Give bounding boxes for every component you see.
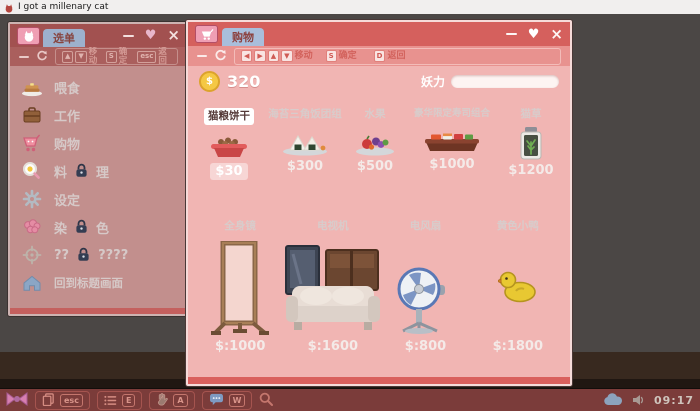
a-keycap: A — [173, 394, 187, 407]
menu-window-toolbar: ▲▼移动 S确定 esc返回 — [10, 47, 187, 66]
egg-magnifier-icon — [19, 159, 45, 183]
heart-icon[interactable]: ♥ — [528, 28, 540, 41]
minimize-icon[interactable] — [506, 33, 517, 35]
search-icon[interactable] — [259, 391, 273, 410]
item-price: $30 — [210, 163, 247, 181]
menu-item-shop[interactable]: 购物 — [10, 129, 187, 157]
taskbar-menu-button[interactable]: esc — [35, 391, 90, 410]
menu-item-label-right: 色 — [96, 218, 109, 237]
item-price: $:1600 — [308, 339, 358, 355]
menu-item-label-left: 料 — [54, 162, 67, 181]
menu-item-dye-locked[interactable]: 染色 — [10, 213, 187, 241]
key-confirm: S — [326, 50, 337, 62]
shop-window-titlebar[interactable]: 购物 ♥ × — [188, 22, 570, 46]
lock-icon — [75, 219, 88, 238]
key-down: ▼ — [75, 51, 86, 63]
shop-item-fan[interactable]: 电风扇 $:800 — [379, 220, 471, 354]
close-icon[interactable]: × — [550, 27, 563, 42]
brain-icon — [19, 215, 45, 239]
food-items-row: 猫粮饼干 $30 海苔三角饭团组 $300 水果 $500 — [188, 108, 570, 180]
taskbar: esc E A W — [0, 388, 700, 411]
key-right: ▶ — [254, 50, 265, 62]
menu-item-label-left: 染 — [54, 218, 67, 237]
shop-stats-row: $ 320 妖力 — [188, 66, 570, 96]
electric-fan-image — [395, 237, 455, 335]
shop-window-tab[interactable]: 购物 — [222, 28, 264, 46]
menu-item-cooking-locked[interactable]: 料理 — [10, 157, 187, 185]
item-name: 猫草 — [521, 108, 542, 121]
collapse-icon[interactable] — [197, 55, 207, 57]
shop-item-mirror[interactable]: 全身镜 $:1000 — [194, 220, 286, 354]
shop-window-toolbar: ◀▶▲▼移动 S确定 D返回 — [188, 46, 570, 66]
confirm-hint-label: 确定 — [339, 52, 357, 61]
refresh-icon[interactable] — [36, 47, 48, 66]
sushi-platter-image — [423, 122, 481, 154]
menu-item-label: 喂食 — [54, 78, 80, 97]
app-cat-icon — [4, 0, 14, 17]
minimize-icon[interactable] — [123, 35, 134, 37]
lock-icon — [77, 247, 90, 266]
shop-item-cat-grass[interactable]: 猫草 $1200 — [498, 108, 564, 178]
shop-key-hints: ◀▶▲▼移动 S确定 D返回 — [234, 48, 561, 65]
menu-item-mystery-locked[interactable]: ?????? — [10, 241, 187, 269]
key-back: D — [374, 50, 386, 62]
menu-item-label: 回到标题画面 — [54, 275, 123, 291]
bow-icon[interactable] — [6, 391, 28, 411]
shop-item-tv[interactable]: 电视机 $:1600 — [286, 220, 379, 354]
back-hint-label: 返回 — [387, 52, 405, 61]
shop-window: 购物 ♥ × ◀▶▲▼移动 S确定 D返回 $ 320 妖力 — [186, 20, 572, 386]
briefcase-icon — [19, 103, 45, 127]
onigiri-plate-image — [281, 124, 329, 156]
menu-key-hints: ▲▼移动 S确定 esc返回 — [55, 48, 178, 65]
back-hint-label: 返回 — [158, 48, 171, 65]
furniture-items-row: 全身镜 $:1000 电视机 $:1600 电风扇 $:800 — [188, 220, 570, 354]
key-left: ◀ — [241, 50, 252, 62]
gear-icon — [19, 187, 45, 211]
confirm-hint-label: 确定 — [119, 48, 133, 65]
pancake-icon — [19, 75, 45, 99]
menu-window-tab[interactable]: 选单 — [43, 29, 85, 47]
item-price: $500 — [357, 159, 393, 175]
shop-item-sushi[interactable]: 豪华限定寿司组合 $1000 — [406, 108, 498, 173]
power-label: 妖力 — [421, 73, 445, 90]
hand-icon — [156, 391, 168, 410]
item-name: 猫粮饼干 — [204, 108, 254, 125]
item-name: 豪华限定寿司组合 — [414, 108, 490, 119]
move-hint-label: 移动 — [295, 52, 313, 61]
cart-icon — [19, 131, 45, 155]
chat-bubble-icon — [209, 391, 224, 410]
menu-item-label: 购物 — [54, 134, 80, 153]
cloud-icon[interactable] — [603, 391, 623, 410]
item-name: 全身镜 — [224, 220, 256, 233]
money-amount: 320 — [227, 72, 260, 91]
coin-icon: $ — [199, 71, 220, 92]
cat-grass-jar-image — [518, 124, 544, 160]
cat-face-icon — [17, 27, 40, 45]
menu-item-settings[interactable]: 设定 — [10, 185, 187, 213]
full-body-mirror-image — [209, 237, 271, 335]
shopping-cart-icon — [195, 25, 218, 43]
key-up: ▲ — [268, 50, 279, 62]
home-icon — [19, 271, 45, 295]
shop-item-onigiri[interactable]: 海苔三角饭团组 $300 — [266, 108, 344, 174]
item-name: 海苔三角饭团组 — [268, 108, 342, 121]
item-price: $:1000 — [215, 339, 265, 355]
move-hint-label: 移动 — [89, 48, 101, 65]
cat-food-bowl-image — [207, 128, 251, 160]
lock-icon — [75, 163, 88, 182]
collapse-icon[interactable] — [19, 56, 29, 58]
document-icon — [42, 391, 55, 410]
item-name: 电风扇 — [410, 220, 442, 233]
menu-item-feed[interactable]: 喂食 — [10, 73, 187, 101]
taskbar-chat-button[interactable]: W — [202, 391, 253, 410]
shop-item-fruit[interactable]: 水果 $500 — [344, 108, 406, 174]
key-back: esc — [137, 51, 156, 63]
menu-window: 选单 ♥ × ▲▼移动 S确定 esc返回 喂食 — [8, 22, 189, 316]
speaker-icon[interactable] — [632, 391, 645, 410]
item-price: $1000 — [429, 157, 474, 173]
item-name: 黄色小鸭 — [497, 220, 539, 233]
taskbar-list-button[interactable]: E — [97, 391, 142, 410]
item-price: $300 — [287, 159, 323, 175]
os-window-title: I got a millenary cat — [18, 0, 108, 14]
tv-set-image — [284, 237, 382, 335]
yellow-duck-image — [498, 237, 538, 335]
close-icon[interactable]: × — [167, 28, 180, 43]
fruit-plate-image — [354, 124, 396, 156]
menu-item-return-title[interactable]: 回到标题画面 — [10, 269, 187, 297]
heart-icon[interactable]: ♥ — [145, 29, 157, 42]
refresh-icon[interactable] — [214, 47, 227, 66]
item-name: 电视机 — [317, 220, 349, 233]
e-keycap: E — [122, 394, 135, 407]
shop-window-bottom-strip — [188, 377, 570, 384]
menu-item-label-left: ?? — [54, 248, 69, 263]
taskbar-hand-button[interactable]: A — [149, 391, 194, 410]
menu-item-label-right: 理 — [96, 162, 109, 181]
game-screen: I got a millenary cat 选单 ♥ × ▲▼移动 S确定 — [0, 0, 700, 411]
item-price: $:800 — [405, 339, 446, 355]
menu-item-label-right: ???? — [98, 248, 128, 263]
list-icon — [104, 391, 117, 410]
shop-item-duck[interactable]: 黄色小鸭 $:1800 — [472, 220, 564, 354]
menu-item-work[interactable]: 工作 — [10, 101, 187, 129]
key-down: ▼ — [281, 50, 292, 62]
menu-window-titlebar[interactable]: 选单 ♥ × — [10, 24, 187, 47]
esc-keycap: esc — [60, 394, 83, 407]
crosshair-icon — [19, 243, 45, 267]
menu-list: 喂食 工作 购物 料理 — [10, 66, 187, 308]
menu-window-bottom-strip — [10, 308, 187, 314]
item-price: $1200 — [508, 163, 553, 179]
w-keycap: W — [229, 394, 246, 407]
item-price: $:1800 — [493, 339, 543, 355]
taskbar-clock: 09:17 — [654, 394, 694, 407]
key-up: ▲ — [62, 51, 73, 63]
shop-item-cat-food[interactable]: 猫粮饼干 $30 — [192, 108, 266, 180]
item-name: 水果 — [365, 108, 386, 121]
power-bar — [451, 75, 559, 88]
key-confirm: S — [106, 51, 117, 63]
menu-item-label: 工作 — [54, 106, 80, 125]
menu-item-label: 设定 — [54, 190, 80, 209]
os-titlebar: I got a millenary cat — [0, 0, 700, 14]
